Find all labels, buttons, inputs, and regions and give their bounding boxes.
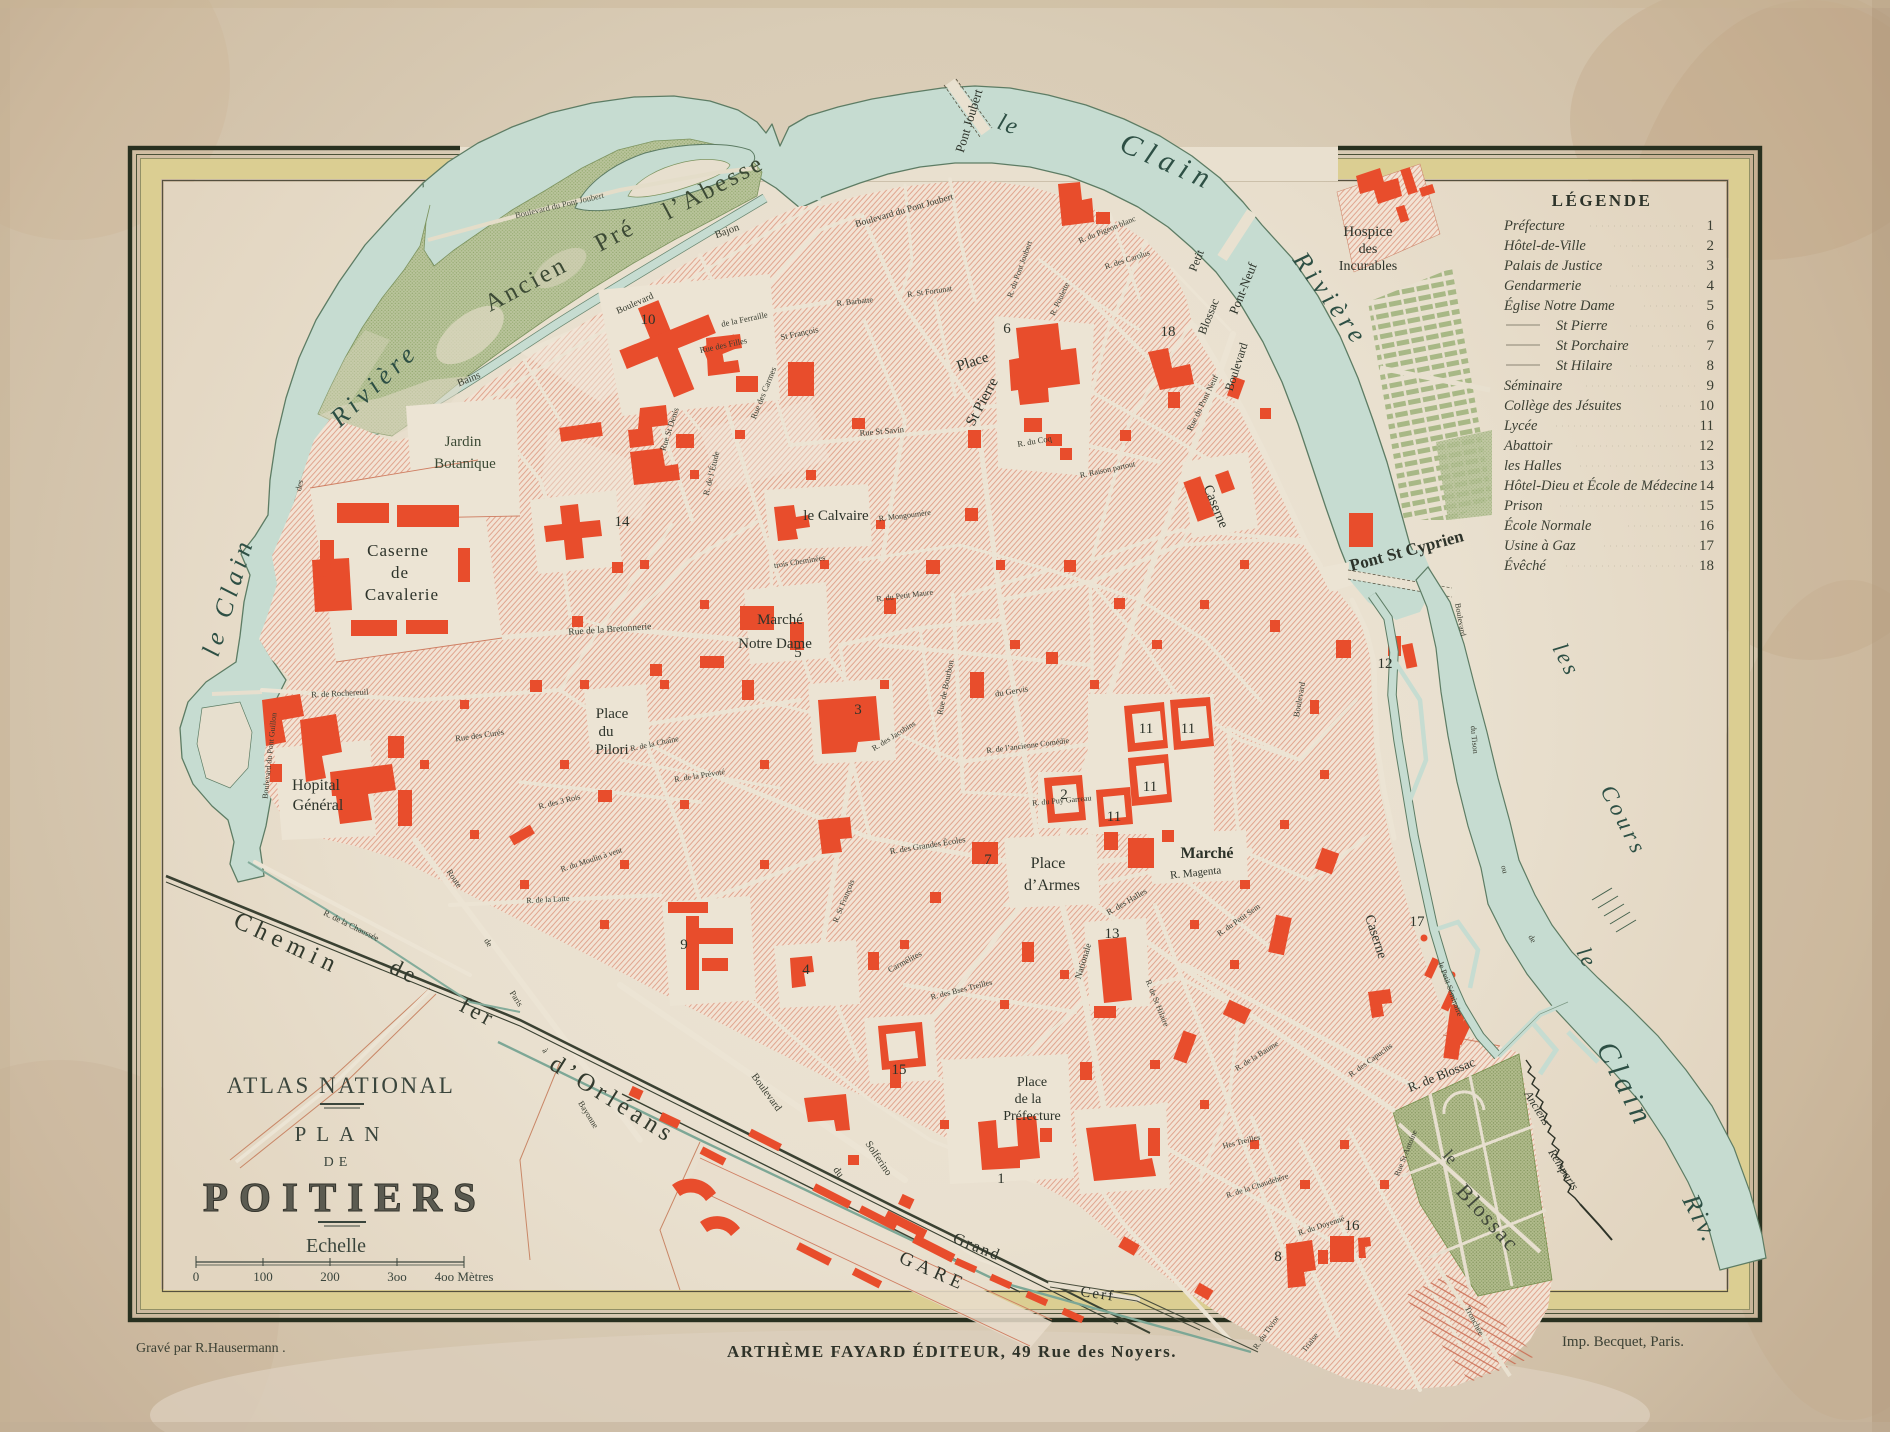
svg-text:Préfecture: Préfecture bbox=[1503, 218, 1565, 234]
svg-text:9: 9 bbox=[680, 937, 688, 953]
svg-text:S​t Hilaire: S​t Hilaire bbox=[1556, 358, 1613, 374]
svg-text:Marché: Marché bbox=[757, 612, 803, 628]
svg-text:ARTHÈME FAYARD ÉDITEUR, 49 Rue: ARTHÈME FAYARD ÉDITEUR, 49 Rue des Noyer… bbox=[727, 1342, 1177, 1361]
svg-text:Botanique: Botanique bbox=[434, 456, 496, 472]
svg-text:Église Notre Dame: Église Notre Dame bbox=[1503, 297, 1615, 314]
svg-text:4: 4 bbox=[802, 962, 810, 978]
svg-text:10: 10 bbox=[641, 312, 656, 328]
svg-text:de la: de la bbox=[1015, 1092, 1043, 1107]
svg-text:des: des bbox=[1359, 242, 1378, 257]
svg-text:3oo: 3oo bbox=[387, 1269, 407, 1284]
svg-text:2: 2 bbox=[1707, 238, 1715, 254]
svg-text:Imp. Becquet, Paris.: Imp. Becquet, Paris. bbox=[1562, 1334, 1684, 1350]
svg-text:8: 8 bbox=[1707, 358, 1715, 374]
svg-text:Séminaire: Séminaire bbox=[1504, 378, 1563, 394]
svg-text:0: 0 bbox=[193, 1269, 200, 1284]
svg-text:17: 17 bbox=[1699, 538, 1715, 554]
svg-text:9: 9 bbox=[1707, 378, 1715, 394]
svg-text:16: 16 bbox=[1345, 1218, 1361, 1234]
svg-text:POITIERS: POITIERS bbox=[203, 1174, 487, 1220]
svg-text:15: 15 bbox=[1699, 498, 1714, 514]
svg-text:13: 13 bbox=[1105, 926, 1120, 942]
svg-text:4oo Mètres: 4oo Mètres bbox=[435, 1269, 494, 1284]
svg-text:11: 11 bbox=[1143, 779, 1157, 795]
svg-text:Collège des Jésuites: Collège des Jésuites bbox=[1504, 398, 1622, 414]
svg-text:10: 10 bbox=[1699, 398, 1714, 414]
svg-text:PLAN: PLAN bbox=[295, 1122, 390, 1146]
svg-text:1: 1 bbox=[997, 1171, 1005, 1187]
svg-text:Echelle: Echelle bbox=[306, 1235, 366, 1257]
svg-text:4: 4 bbox=[1707, 278, 1715, 294]
svg-text:École Normale: École Normale bbox=[1503, 517, 1592, 534]
svg-text:LÉGENDE: LÉGENDE bbox=[1552, 191, 1653, 210]
svg-text:6: 6 bbox=[1003, 321, 1011, 337]
svg-text:Hôtel-de-Ville: Hôtel-de-Ville bbox=[1503, 238, 1586, 254]
svg-text:1: 1 bbox=[1707, 218, 1715, 234]
svg-text:Hospice: Hospice bbox=[1343, 224, 1392, 240]
svg-text:Abattoir: Abattoir bbox=[1503, 438, 1553, 454]
svg-text:7: 7 bbox=[1707, 338, 1715, 354]
svg-text:Hôtel-Dieu et École de Médecin: Hôtel-Dieu et École de Médecine bbox=[1503, 477, 1698, 494]
svg-text:11: 11 bbox=[1139, 721, 1153, 737]
svg-text:Évêché: Évêché bbox=[1503, 557, 1546, 574]
svg-text:de: de bbox=[391, 563, 409, 582]
svg-text:11: 11 bbox=[1700, 418, 1714, 434]
svg-text:Jardin: Jardin bbox=[445, 434, 482, 450]
svg-text:8: 8 bbox=[1274, 1249, 1282, 1265]
svg-text:le Calvaire: le Calvaire bbox=[803, 508, 869, 524]
svg-text:Lycée: Lycée bbox=[1503, 418, 1538, 434]
svg-text:18: 18 bbox=[1699, 558, 1714, 574]
svg-text:Pilori: Pilori bbox=[595, 742, 628, 758]
svg-text:14: 14 bbox=[1699, 478, 1715, 494]
svg-text:Place: Place bbox=[1017, 1075, 1047, 1090]
svg-text:du: du bbox=[599, 724, 615, 740]
svg-text:12: 12 bbox=[1378, 656, 1393, 672]
svg-text:S​t Pierre: S​t Pierre bbox=[1556, 318, 1608, 334]
svg-text:16: 16 bbox=[1699, 518, 1715, 534]
svg-text:12: 12 bbox=[1699, 438, 1714, 454]
svg-text:Hopital: Hopital bbox=[292, 777, 341, 794]
svg-text:Gravé par R.Hausermann .: Gravé par R.Hausermann . bbox=[136, 1341, 286, 1356]
svg-text:13: 13 bbox=[1699, 458, 1714, 474]
svg-text:DE: DE bbox=[324, 1155, 353, 1170]
svg-text:Cavalerie: Cavalerie bbox=[365, 585, 439, 604]
svg-text:100: 100 bbox=[253, 1269, 273, 1284]
svg-text:Usine à Gaz: Usine à Gaz bbox=[1504, 538, 1576, 554]
svg-text:200: 200 bbox=[320, 1269, 340, 1284]
svg-text:d’Armes: d’Armes bbox=[1024, 877, 1080, 894]
svg-text:Incurables: Incurables bbox=[1339, 259, 1397, 274]
svg-text:15: 15 bbox=[892, 1062, 907, 1078]
svg-text:Place: Place bbox=[596, 706, 629, 722]
svg-text:S​t Porchaire: S​t Porchaire bbox=[1556, 338, 1629, 354]
svg-text:11: 11 bbox=[1181, 721, 1195, 737]
svg-text:7: 7 bbox=[984, 852, 992, 868]
svg-text:Marché: Marché bbox=[1180, 845, 1233, 862]
svg-text:Préfecture: Préfecture bbox=[1003, 1109, 1061, 1124]
svg-text:ATLAS NATIONAL: ATLAS NATIONAL bbox=[227, 1073, 456, 1098]
svg-text:11: 11 bbox=[1107, 809, 1121, 825]
svg-text:14: 14 bbox=[615, 514, 631, 530]
svg-text:Palais de Justice: Palais de Justice bbox=[1503, 258, 1603, 274]
svg-text:3: 3 bbox=[854, 702, 862, 718]
svg-text:17: 17 bbox=[1410, 914, 1426, 930]
svg-text:Général: Général bbox=[293, 797, 344, 814]
svg-text:Prison: Prison bbox=[1503, 498, 1543, 514]
svg-text:3: 3 bbox=[1707, 258, 1715, 274]
svg-text:les Halles: les Halles bbox=[1504, 458, 1562, 474]
svg-text:Gendarmerie: Gendarmerie bbox=[1504, 278, 1582, 294]
svg-text:5: 5 bbox=[1707, 298, 1715, 314]
svg-text:Caserne: Caserne bbox=[367, 541, 429, 560]
svg-text:Place: Place bbox=[1031, 855, 1066, 872]
svg-text:5: 5 bbox=[794, 645, 802, 661]
svg-text:18: 18 bbox=[1161, 324, 1176, 340]
svg-text:6: 6 bbox=[1707, 318, 1715, 334]
